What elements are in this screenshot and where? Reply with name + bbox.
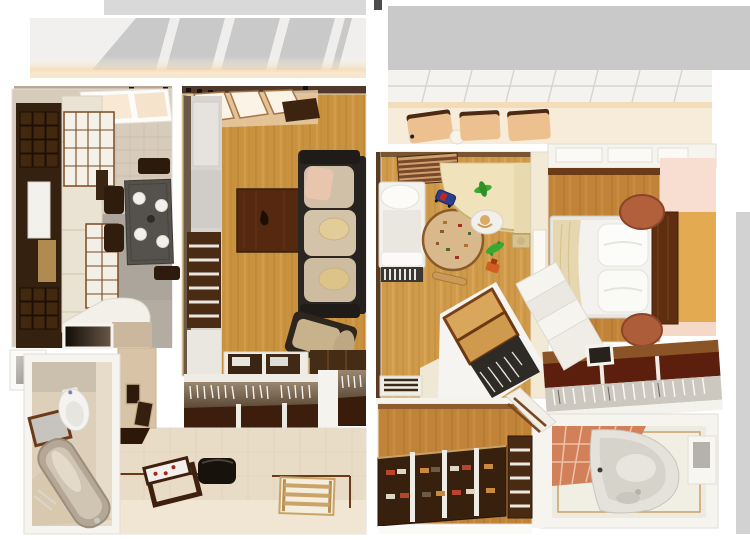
wardrobe-unit [184, 96, 222, 376]
kitchen-chair [154, 266, 180, 280]
plate [134, 228, 146, 240]
roof-gray-block [388, 6, 750, 70]
stool-with-child [471, 210, 503, 234]
bathroom-left [10, 350, 120, 534]
cabinet-cork-panel [38, 240, 56, 282]
sofa [298, 150, 366, 318]
pink-pillow [304, 166, 334, 201]
shelf-divider [442, 450, 447, 518]
bolster-pillow [319, 218, 349, 240]
lounge-chair [459, 110, 500, 141]
dark-doorway [64, 325, 112, 348]
living-room [182, 90, 366, 376]
childrens-room [376, 152, 548, 402]
kitchen [12, 89, 180, 348]
balcony-floor-glow [388, 102, 712, 108]
floorplan-render [0, 0, 750, 540]
plate [155, 199, 167, 211]
floorplan-svg [0, 0, 750, 540]
tub-faucet [598, 468, 603, 473]
wall-niche-dark [587, 345, 612, 365]
kitchen-chair [104, 224, 124, 252]
round-stool [620, 195, 664, 229]
roof-dark-corner [374, 0, 382, 10]
headboard-panel [652, 212, 678, 324]
roof-band-upper [104, 0, 366, 15]
pink-wall [660, 158, 716, 212]
sofa-armrest [300, 150, 360, 164]
bathroom-right [532, 414, 718, 528]
single-bed [379, 182, 425, 282]
cabinet-white-door [28, 182, 50, 238]
closet-planks [338, 396, 366, 426]
hall-closet [184, 370, 366, 430]
hallway-library [376, 376, 556, 534]
left-balcony-roof [30, 0, 366, 78]
skylight-pane [134, 92, 168, 118]
round-stool [622, 314, 662, 346]
balcony-glow [30, 56, 366, 72]
dining-table [125, 179, 174, 265]
closet-planks [184, 404, 320, 428]
kitchen-chair [104, 186, 124, 214]
slatted-mat [279, 477, 334, 515]
closet-divider-wall [318, 370, 338, 430]
coffee-table [237, 189, 301, 252]
desk-side [514, 163, 530, 233]
right-edge-gray-strip [736, 212, 750, 534]
balcony-glow-strip [30, 70, 366, 78]
plate [156, 235, 168, 247]
skylight-dark-panel [282, 98, 320, 122]
shelf-divider [410, 452, 415, 522]
kitchen-bench [138, 158, 170, 174]
bedroom-top-wall [548, 168, 660, 175]
plate [133, 192, 145, 204]
left-apartment [10, 86, 366, 534]
bolster-pillow [319, 268, 349, 290]
radiator-footboard [381, 267, 423, 282]
partition-side [112, 322, 152, 347]
lounge-chair [507, 109, 551, 142]
bed-pillow [381, 252, 423, 266]
right-apartment [376, 144, 723, 534]
shelf-divider [474, 448, 479, 516]
lounge-chair [406, 109, 454, 144]
right-roof-and-balcony [374, 0, 750, 144]
